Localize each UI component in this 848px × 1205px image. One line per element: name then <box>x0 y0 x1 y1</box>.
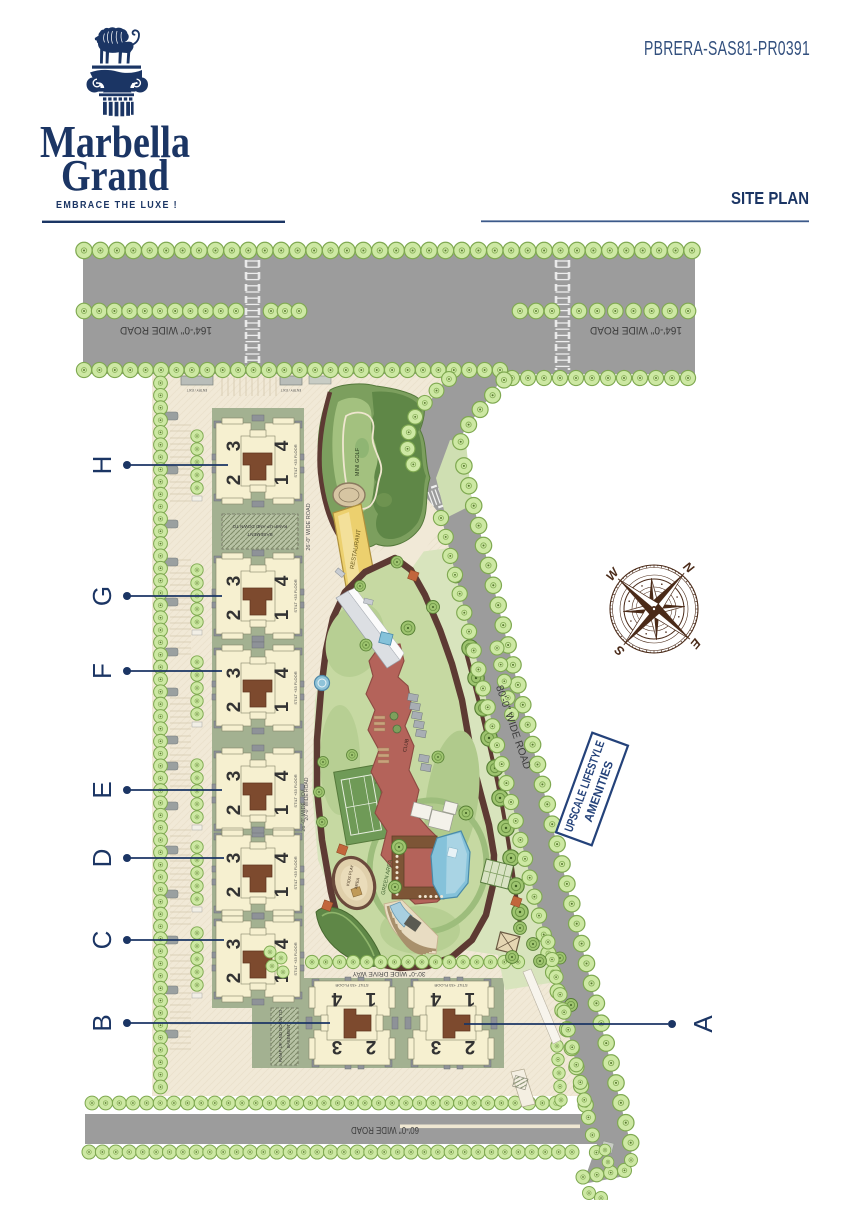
svg-text:164'-0" WIDE ROAD: 164'-0" WIDE ROAD <box>120 324 212 336</box>
svg-text:PBRERA-SAS81-PR0391: PBRERA-SAS81-PR0391 <box>644 38 810 60</box>
svg-text:F: F <box>87 663 117 679</box>
svg-text:D: D <box>87 849 117 868</box>
svg-text:60'-0" WIDE ROAD: 60'-0" WIDE ROAD <box>351 1124 419 1136</box>
svg-text:A: A <box>688 1015 718 1033</box>
svg-text:26'-0" WIDE ROAD: 26'-0" WIDE ROAD <box>306 503 312 550</box>
svg-text:EMBRACE THE LUXE !: EMBRACE THE LUXE ! <box>56 199 178 211</box>
svg-text:164'-0" WIDE ROAD: 164'-0" WIDE ROAD <box>590 324 682 336</box>
svg-text:30'-0" WIDE DRIVE WAY: 30'-0" WIDE DRIVE WAY <box>352 970 426 977</box>
svg-text:ENTRY / EXIT: ENTRY / EXIT <box>281 388 301 392</box>
svg-text:Grand: Grand <box>61 151 169 200</box>
svg-text:RAMP UP AND DOWN TO: RAMP UP AND DOWN TO <box>232 524 287 529</box>
svg-text:SITE PLAN: SITE PLAN <box>731 188 809 208</box>
svg-text:RAMP UP AND DOWN TO: RAMP UP AND DOWN TO <box>278 1009 283 1062</box>
svg-text:G: G <box>87 586 117 606</box>
svg-text:MINI GOLF: MINI GOLF <box>355 447 361 476</box>
svg-text:B: B <box>87 1014 117 1031</box>
svg-text:H: H <box>87 456 117 475</box>
svg-text:20'-0" WIDE ROAD: 20'-0" WIDE ROAD <box>304 777 310 820</box>
svg-text:E: E <box>87 781 117 798</box>
svg-text:BASEMENT: BASEMENT <box>286 1024 291 1048</box>
svg-text:BASEMENT: BASEMENT <box>247 532 272 537</box>
svg-text:ENTRY / EXIT: ENTRY / EXIT <box>187 388 207 392</box>
svg-text:C: C <box>87 931 117 950</box>
